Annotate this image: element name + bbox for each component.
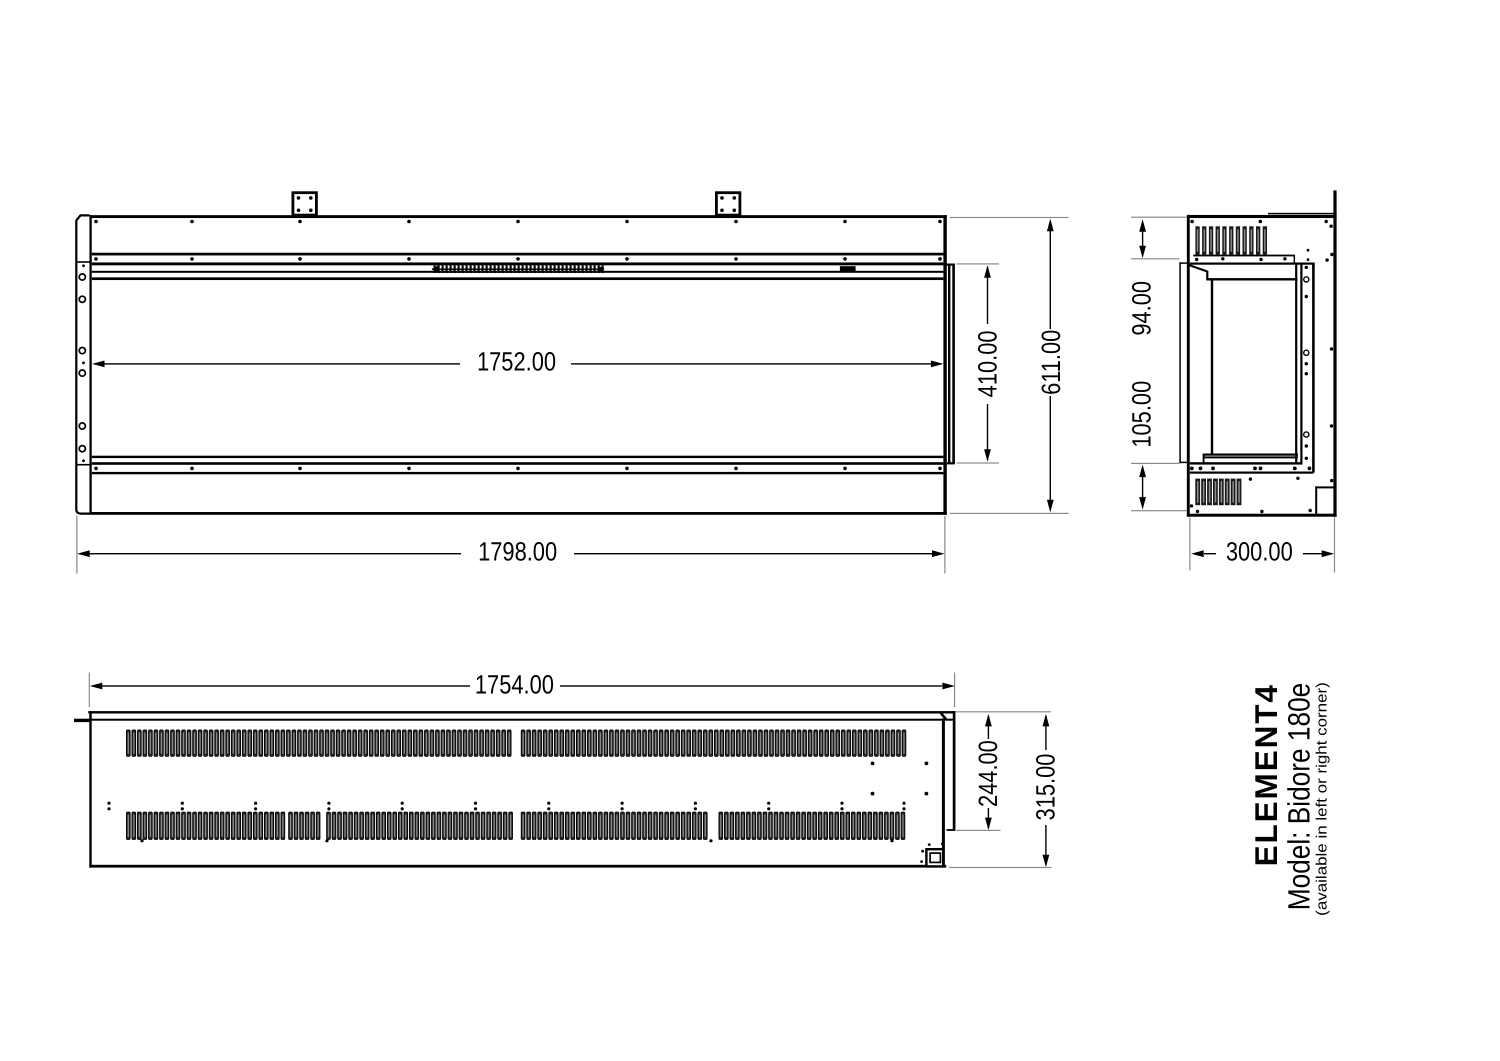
svg-text:1798.00: 1798.00 (478, 537, 557, 567)
svg-text:105.00: 105.00 (1127, 381, 1157, 448)
svg-text:410.00: 410.00 (973, 330, 1003, 397)
svg-text:(available in left or right co: (available in left or right corner) (1313, 682, 1330, 916)
svg-text:244.00: 244.00 (973, 740, 1003, 807)
svg-text:ELEMENT4: ELEMENT4 (1248, 683, 1284, 866)
svg-text:1754.00: 1754.00 (475, 669, 554, 699)
svg-text:Model: Bidore 180e: Model: Bidore 180e (1281, 683, 1316, 911)
svg-text:611.00: 611.00 (1036, 330, 1066, 395)
svg-text:315.00: 315.00 (1030, 754, 1060, 821)
svg-text:1752.00: 1752.00 (477, 346, 556, 376)
svg-text:300.00: 300.00 (1226, 537, 1293, 567)
svg-text:94.00: 94.00 (1127, 281, 1157, 336)
